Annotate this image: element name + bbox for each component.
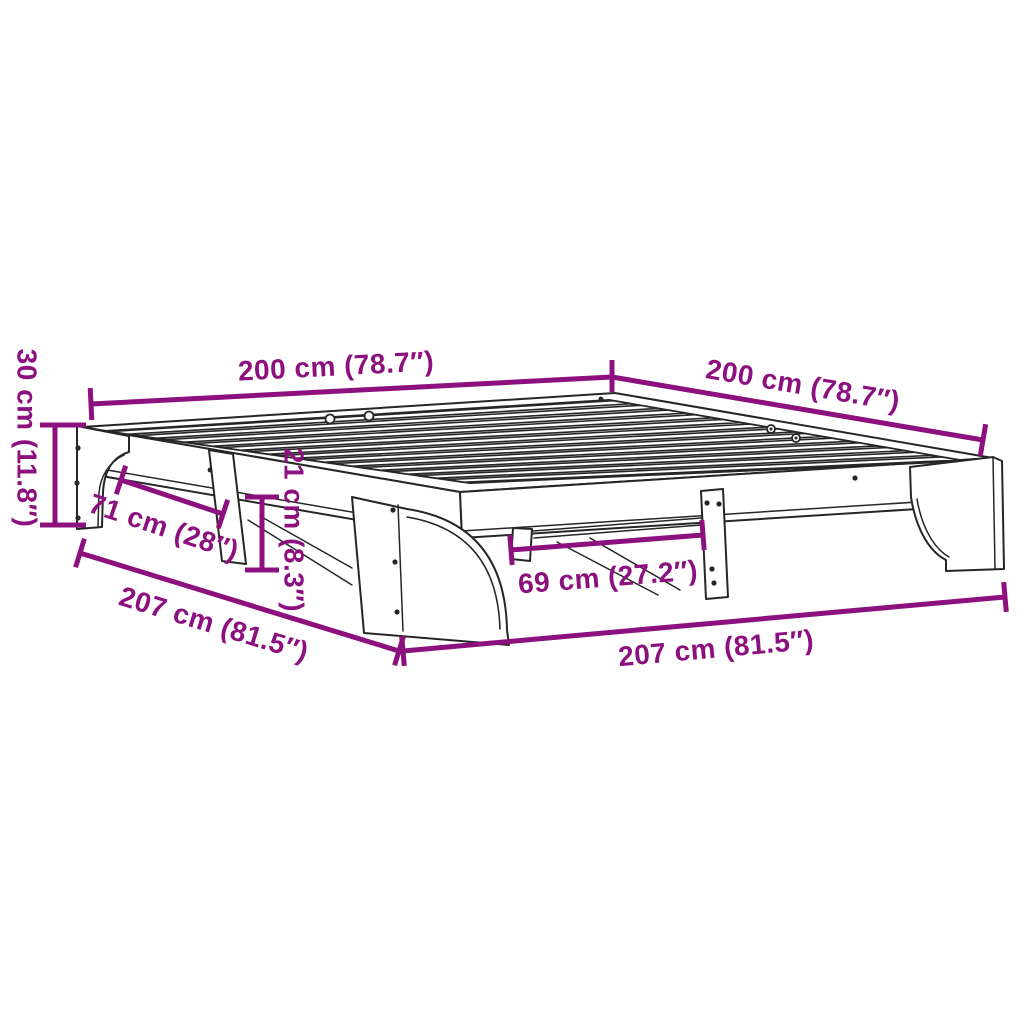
dimension-label-leg-gap-front: 69 cm (27.2″) (517, 554, 699, 599)
screw-dot-icon (74, 480, 79, 485)
screw-dot-icon (795, 437, 798, 440)
screw-dot-icon (716, 501, 721, 506)
tick (402, 636, 405, 666)
dimension-line-underbed-clearance (245, 497, 279, 570)
screw-dot-icon (394, 609, 399, 614)
screw-dot-icon (770, 428, 773, 431)
tick (90, 388, 92, 420)
tick (980, 424, 985, 456)
bed-frame-diagram-canvas: 200 cm (78.7″) 200 cm (78.7″) 30 cm (11.… (0, 0, 1024, 1024)
knob-icon (365, 412, 374, 421)
product-dimension-diagram: 200 cm (78.7″) 200 cm (78.7″) 30 cm (11.… (0, 0, 1024, 1024)
screw-dot-icon (392, 559, 397, 564)
knob-icon (326, 415, 335, 424)
dimension-label-underbed-clearance: 21 cm (8.3″) (279, 448, 310, 612)
front-post-left (511, 528, 532, 561)
tick (702, 520, 704, 550)
screw-dot-icon (709, 566, 714, 571)
right-corner-leg (910, 457, 1004, 571)
screw-dot-icon (208, 468, 213, 473)
screw-dot-icon (711, 580, 716, 585)
tick (510, 535, 512, 565)
screw-dot-icon (704, 500, 709, 505)
screw-dot-icon (75, 515, 80, 520)
tick (1004, 582, 1007, 612)
screw-dot-icon (852, 475, 857, 480)
screw-dot-icon (75, 445, 80, 450)
dimension-label-height-left: 30 cm (11.8″) (12, 349, 43, 528)
screw-dot-icon (599, 397, 604, 402)
dimension-label-width-back-left: 200 cm (78.7″) (237, 345, 435, 386)
screw-dot-icon (390, 507, 395, 512)
